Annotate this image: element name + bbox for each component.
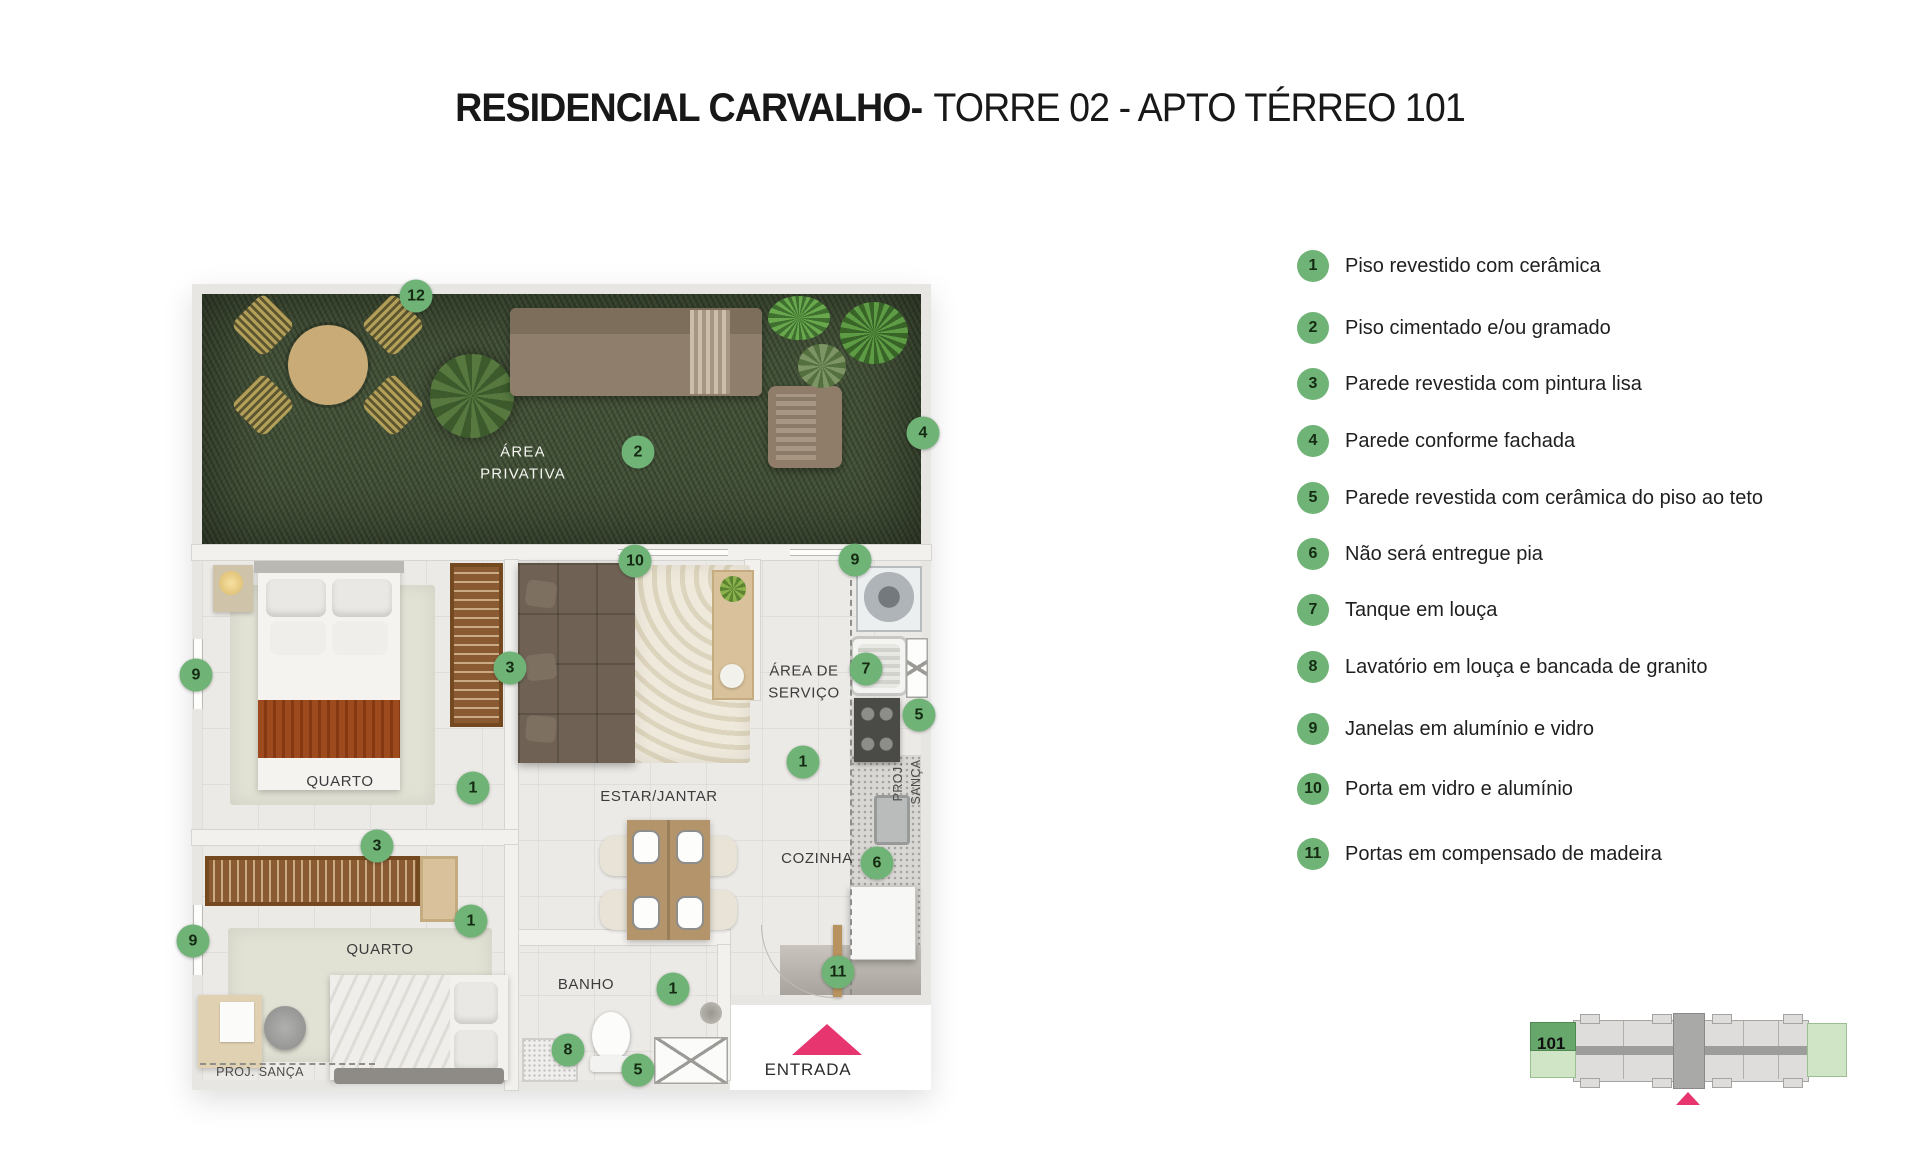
legend-label-7: Tanque em louça (1345, 599, 1497, 622)
legend-item: 4 Parede conforme fachada (1297, 425, 1575, 457)
plan-marker: 3 (361, 830, 394, 863)
garden-chair-icon (360, 372, 425, 437)
toilet-icon (592, 1012, 630, 1060)
legend-item: 9 Janelas em alumínio e vidro (1297, 713, 1594, 745)
legend-label-10: Porta em vidro e alumínio (1345, 778, 1573, 801)
legend-label-3: Parede revestida com pintura lisa (1345, 373, 1642, 396)
legend-label-4: Parede conforme fachada (1345, 430, 1575, 453)
sofa-cushion-icon (524, 579, 557, 609)
plan-marker: 1 (457, 772, 490, 805)
plan-marker: 4 (907, 417, 940, 450)
legend-label-9: Janelas em alumínio e vidro (1345, 718, 1594, 741)
sofa-cushion-icon (525, 715, 557, 744)
bedroom2-wardrobe-icon (205, 856, 420, 906)
wall-bedroom1-living (505, 560, 518, 830)
building-tab (1783, 1078, 1803, 1088)
label-banho: BANHO (558, 974, 614, 996)
building-tab (1580, 1014, 1600, 1024)
building-tab (1652, 1014, 1672, 1024)
legend-marker-6: 6 (1297, 538, 1329, 570)
plan-marker: 5 (903, 699, 936, 732)
building-stair-core (1673, 1013, 1705, 1089)
legend-marker-5: 5 (1297, 482, 1329, 514)
legend-item: 8 Lavatório em louça e bancada de granit… (1297, 651, 1707, 683)
bed-pillow-icon (266, 579, 326, 617)
label-quarto1: QUARTO (306, 771, 373, 793)
plate-icon (634, 832, 658, 862)
legend-item: 5 Parede revestida com cerâmica do piso … (1297, 482, 1763, 514)
label-proj-sanca-right: PROJ. SANÇA (889, 759, 925, 804)
desk-papers-icon (220, 1002, 254, 1042)
bed-throw-icon (258, 700, 400, 758)
building-tab (1712, 1078, 1732, 1088)
legend-item: 1 Piso revestido com cerâmica (1297, 250, 1601, 282)
plan-marker: 1 (657, 973, 690, 1006)
bedroom1-lamp-icon (219, 571, 243, 595)
legend-item: 3 Parede revestida com pintura lisa (1297, 368, 1642, 400)
bed-pillow-icon (270, 621, 326, 655)
plan-marker: 6 (861, 847, 894, 880)
bedroom1-wardrobe-icon (450, 563, 503, 727)
legend-label-1: Piso revestido com cerâmica (1345, 255, 1601, 278)
bed-pillow-icon (332, 579, 392, 617)
console-table-icon (720, 664, 744, 688)
garden-agave-icon (798, 344, 846, 388)
garden-bench-throw-icon (690, 310, 730, 394)
garden-plant-icon (430, 354, 514, 438)
keymap-location-arrow-icon (1676, 1092, 1700, 1105)
legend-item: 10 Porta em vidro e alumínio (1297, 773, 1573, 805)
dining-chair-icon (600, 890, 628, 930)
unit-number: 101 (1537, 1034, 1565, 1054)
plate-icon (634, 898, 658, 928)
bedroom2-wardrobe-side-icon (420, 856, 458, 922)
garden-table-icon (288, 325, 368, 405)
garden-fern-icon (768, 296, 830, 340)
stove-icon (854, 698, 900, 762)
shower-drain-icon (700, 1002, 722, 1024)
building-key-plan: 101 (1528, 1013, 1848, 1108)
label-area-privativa: ÁREA PRIVATIVA (480, 441, 566, 485)
bed2-pillow-icon (454, 982, 498, 1024)
building-tab (1652, 1078, 1672, 1088)
legend-marker-7: 7 (1297, 594, 1329, 626)
plan-marker: 8 (552, 1034, 585, 1067)
garden-area (202, 294, 921, 545)
garden-chair-icon (230, 292, 295, 357)
entrance-arrow-icon (792, 1024, 862, 1055)
plan-marker: 3 (494, 652, 527, 685)
plan-marker: 12 (400, 280, 433, 313)
label-cozinha: COZINHA (781, 848, 853, 870)
plan-marker: 9 (839, 544, 872, 577)
proj-sanca-line-right (850, 560, 852, 995)
plan-marker: 10 (619, 545, 652, 578)
label-area-servico: ÁREA DE SERVIÇO (768, 660, 839, 704)
floor-plan: ÁREA PRIVATIVA QUARTO ESTAR/JANTAR ÁREA … (192, 284, 931, 1090)
building-tab (1783, 1014, 1803, 1024)
legend-item: 11 Portas em compensado de madeira (1297, 838, 1662, 870)
bed-pillow-icon (332, 621, 388, 655)
washer-drum-icon (864, 572, 914, 622)
legend-marker-1: 1 (1297, 250, 1329, 282)
legend-label-8: Lavatório em louça e bancada de granito (1345, 656, 1707, 679)
highlighted-unit-block: 101 (1530, 1022, 1576, 1051)
dining-chair-icon (709, 836, 737, 876)
legend-marker-10: 10 (1297, 773, 1329, 805)
legend-marker-9: 9 (1297, 713, 1329, 745)
legend-label-11: Portas em compensado de madeira (1345, 843, 1662, 866)
legend-label-6: Não será entregue pia (1345, 543, 1543, 566)
plan-marker: 7 (850, 653, 883, 686)
plan-marker: 9 (180, 659, 213, 692)
shower-floor-icon (654, 1037, 728, 1084)
garden-lounge-blanket-icon (776, 394, 816, 460)
console-plant-icon (720, 576, 746, 602)
legend-item: 7 Tanque em louça (1297, 594, 1497, 626)
title-project-name: RESIDENCIAL CARVALHO- (455, 86, 922, 130)
building-tab (1580, 1078, 1600, 1088)
label-proj-sanca-bottom: PROJ. SANÇA (216, 1063, 304, 1081)
garden-fern-icon (840, 302, 908, 364)
legend-item: 2 Piso cimentado e/ou gramado (1297, 312, 1611, 344)
legend-label-2: Piso cimentado e/ou gramado (1345, 317, 1611, 340)
service-window-hatch (906, 638, 928, 698)
label-entrada: ENTRADA (765, 1060, 852, 1080)
legend-marker-4: 4 (1297, 425, 1329, 457)
label-quarto2: QUARTO (346, 939, 413, 961)
garden-chair-icon (230, 372, 295, 437)
plate-icon (678, 832, 702, 862)
dining-chair-icon (709, 890, 737, 930)
label-estar-jantar: ESTAR/JANTAR (600, 786, 718, 808)
legend-marker-3: 3 (1297, 368, 1329, 400)
legend-marker-11: 11 (1297, 838, 1329, 870)
page-title: RESIDENCIAL CARVALHO-TORRE 02 - APTO TÉR… (58, 86, 1863, 131)
plan-marker: 9 (177, 925, 210, 958)
fridge-cabinet-icon (850, 886, 916, 960)
adjacent-unit-block (1807, 1023, 1847, 1077)
wall-bedroom1-bottom (192, 830, 518, 845)
dining-chair-icon (600, 836, 628, 876)
plan-marker: 2 (622, 436, 655, 469)
sofa-cushion-icon (525, 653, 558, 682)
plan-marker: 1 (455, 905, 488, 938)
legend-item: 6 Não será entregue pia (1297, 538, 1543, 570)
legend-marker-2: 2 (1297, 312, 1329, 344)
plan-marker: 5 (622, 1054, 655, 1087)
plan-marker: 1 (787, 746, 820, 779)
bed2-pillow-icon (454, 1030, 498, 1072)
plate-icon (678, 898, 702, 928)
building-tab (1712, 1014, 1732, 1024)
bed2-bench-icon (334, 1068, 504, 1084)
desk-chair-icon (264, 1006, 306, 1050)
legend-marker-8: 8 (1297, 651, 1329, 683)
plan-marker: 11 (822, 956, 855, 989)
bed-headboard-icon (254, 561, 404, 573)
title-unit-info: TORRE 02 - APTO TÉRREO 101 (933, 86, 1464, 130)
legend-label-5: Parede revestida com cerâmica do piso ao… (1345, 487, 1763, 510)
